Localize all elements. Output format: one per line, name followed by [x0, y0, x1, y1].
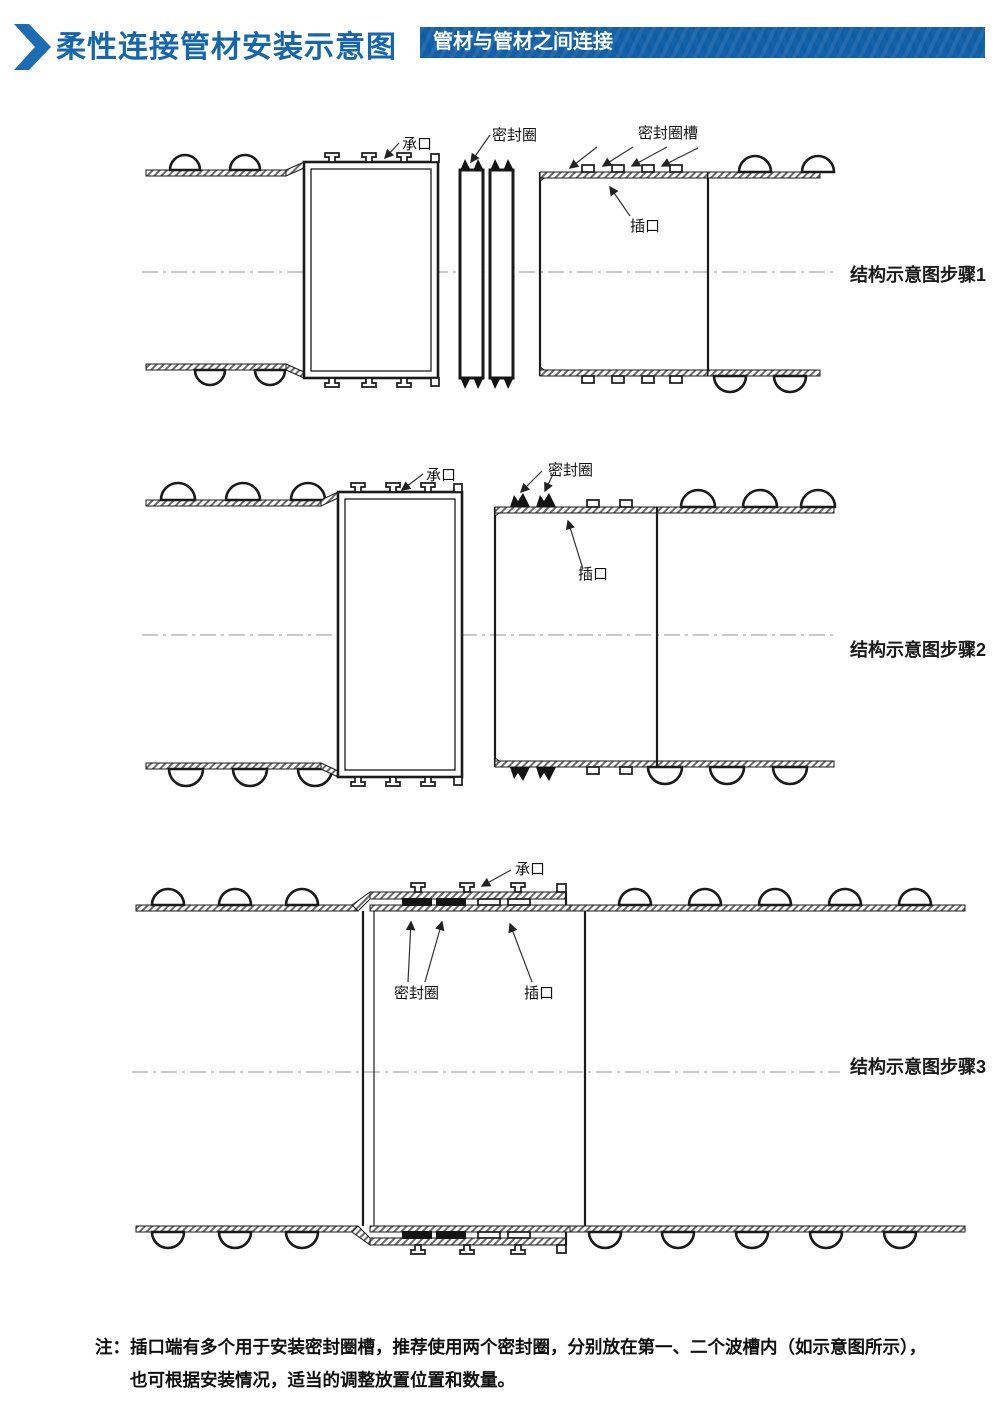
label-seal-ring: 密封圈 — [492, 127, 537, 144]
right-pipe-with-seals — [495, 490, 835, 784]
footnote: 注： 插口端有多个用于安装密封圈槽，推荐使用两个密封圈，分别放在第一、二个波槽内… — [95, 1331, 963, 1397]
socket-bell — [304, 153, 439, 387]
left-pipe-corrugated — [146, 155, 304, 385]
label-socket: 承口 — [402, 136, 432, 153]
step2-label: 结构示意图步骤2 — [850, 636, 986, 662]
joint-assembly — [352, 883, 585, 1254]
right-pipe-spigot — [540, 156, 834, 392]
label-seal-ring: 密封圈 — [548, 462, 593, 479]
page-header: 柔性连接管材安装示意图 管材与管材之间连接 — [0, 0, 1000, 80]
page-title: 柔性连接管材安装示意图 — [56, 22, 397, 66]
header-badge: 管材与管材之间连接 — [420, 27, 985, 58]
assembled-pipe-walls — [136, 889, 965, 1248]
step1-drawing: 承口 密封圈 密封圈槽 插口 — [140, 118, 840, 410]
socket-bell — [338, 483, 462, 786]
step1-label: 结构示意图步骤1 — [850, 261, 986, 287]
label-seal-ring-groove: 密封圈槽 — [638, 125, 698, 142]
label-seal-ring: 密封圈 — [394, 985, 439, 1002]
label-spigot: 插口 — [630, 218, 660, 235]
footnote-body: 插口端有多个用于安装密封圈槽，推荐使用两个密封圈，分别放在第一、二个波槽内（如示… — [130, 1331, 963, 1397]
label-socket: 承口 — [426, 467, 456, 484]
footnote-line1: 插口端有多个用于安装密封圈槽，推荐使用两个密封圈，分别放在第一、二个波槽内（如示… — [130, 1337, 926, 1357]
label-spigot: 插口 — [578, 566, 608, 583]
footnote-line2: 也可根据安装情况，适当的调整放置位置和数量。 — [130, 1370, 515, 1390]
step2-drawing: 承口 密封圈 插口 — [140, 455, 840, 795]
label-socket: 承口 — [515, 861, 545, 878]
chevron-icon — [14, 24, 52, 70]
footnote-prefix: 注： — [95, 1331, 130, 1397]
seal-rings-loose — [460, 159, 514, 389]
label-spigot: 插口 — [524, 985, 554, 1002]
step3-label: 结构示意图步骤3 — [850, 1053, 986, 1079]
